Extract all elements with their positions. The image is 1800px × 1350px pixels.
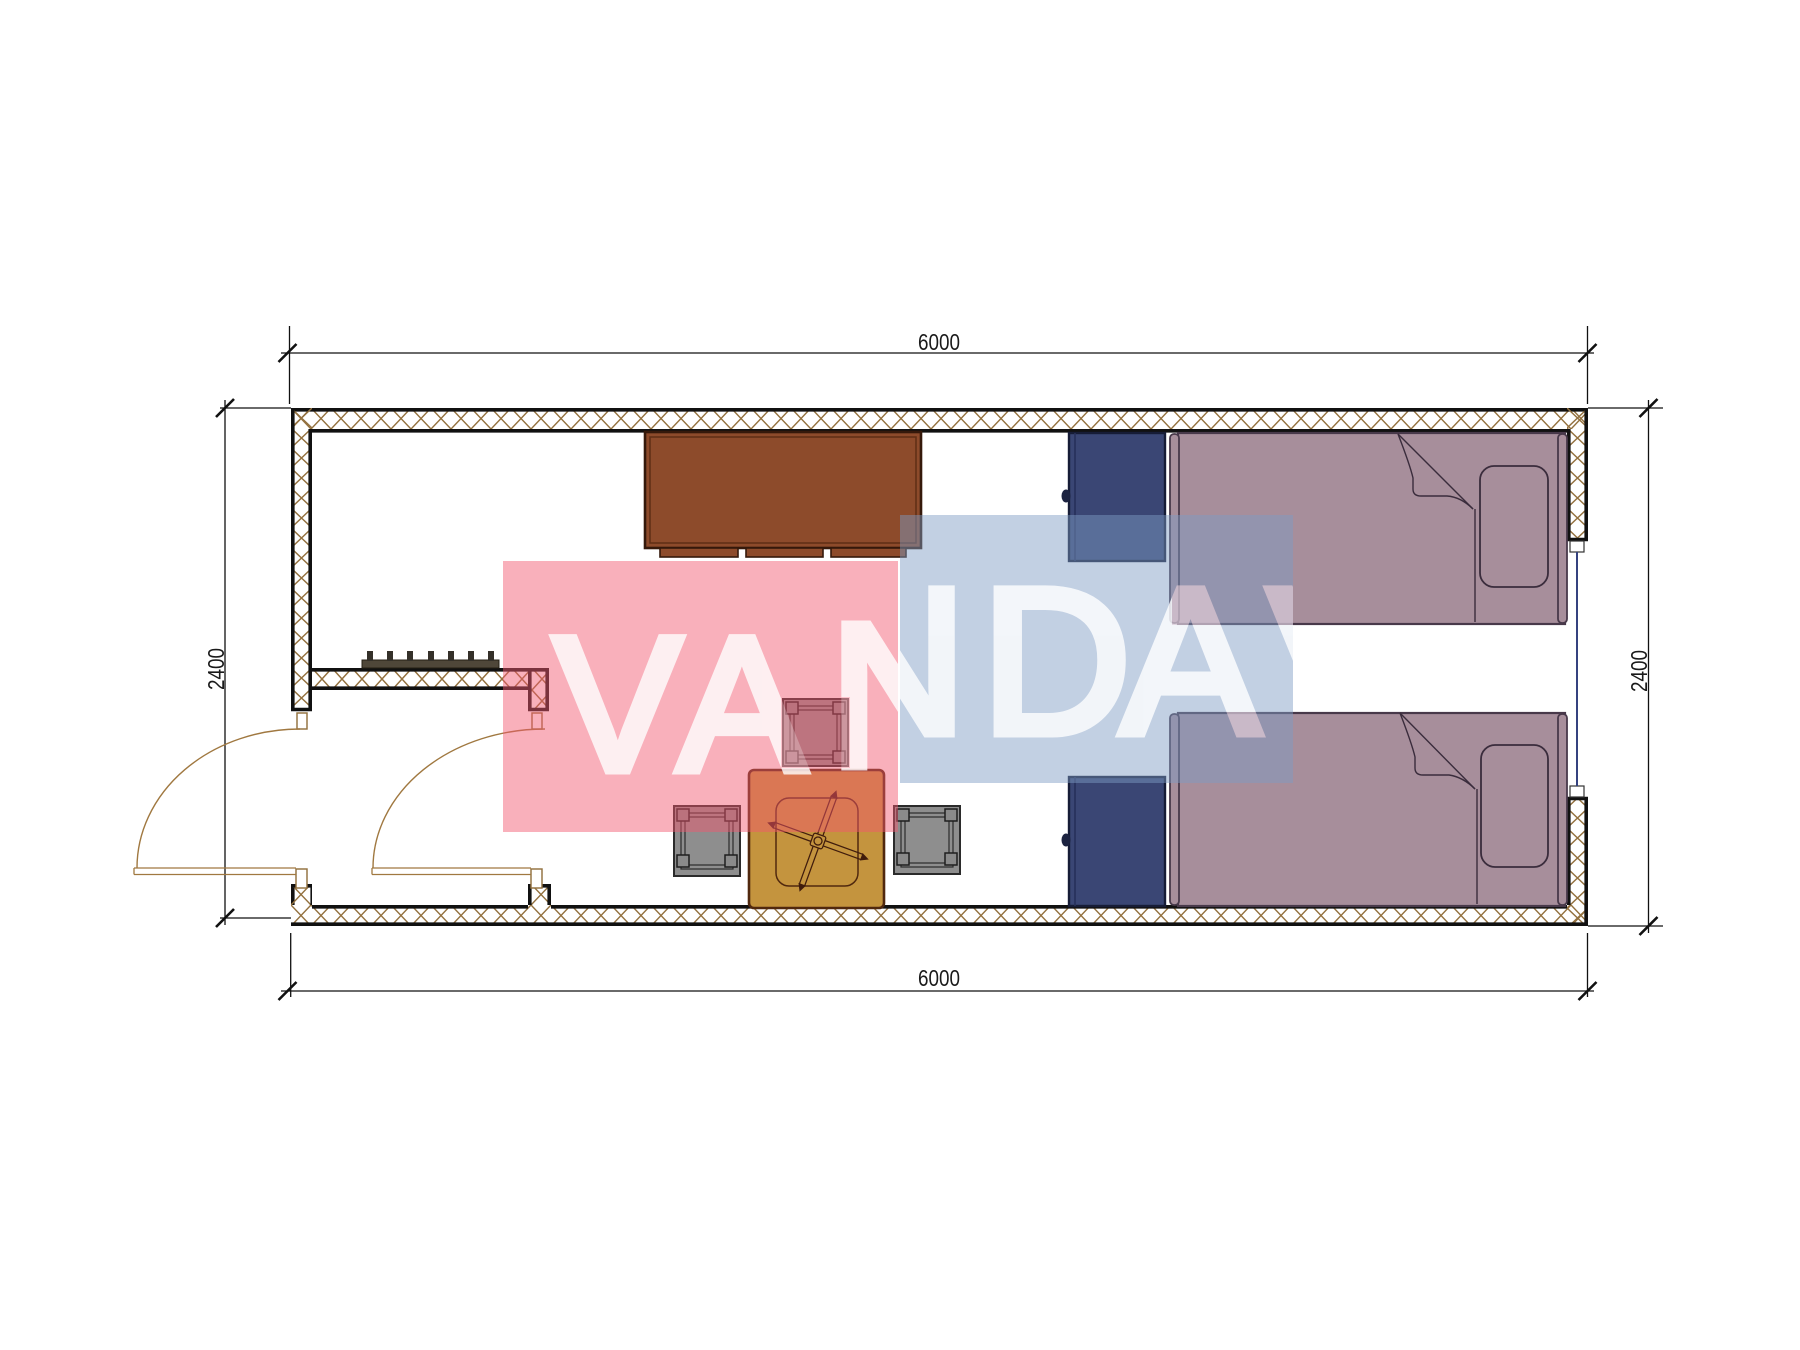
svg-text:2400: 2400 [1626, 650, 1652, 692]
svg-text:6000: 6000 [918, 329, 960, 355]
svg-text:2400: 2400 [203, 648, 229, 690]
svg-text:6000: 6000 [918, 965, 960, 991]
svg-text:V: V [554, 598, 681, 811]
svg-text:D: D [981, 546, 1131, 778]
